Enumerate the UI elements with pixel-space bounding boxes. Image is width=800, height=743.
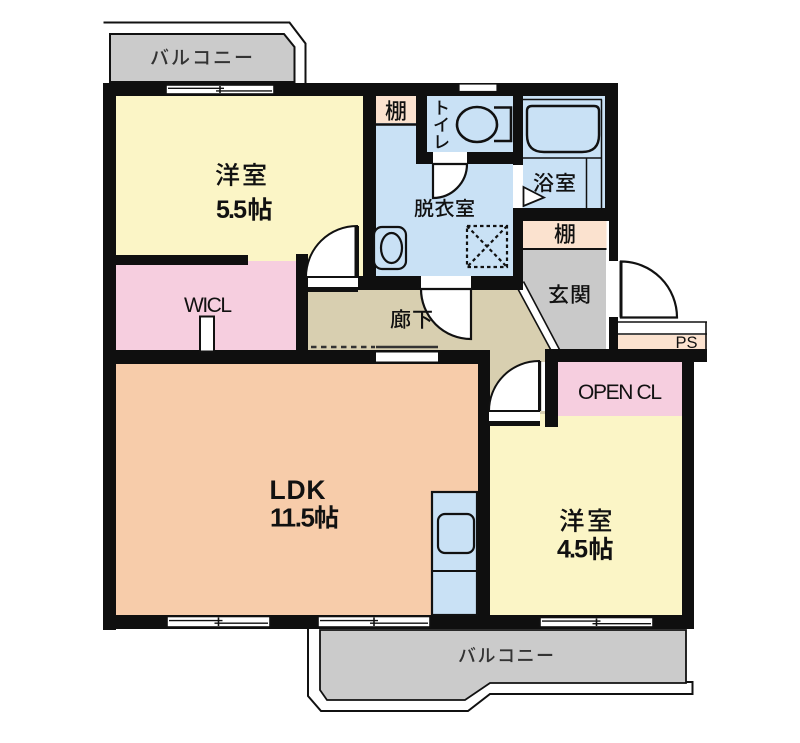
svg-text:OPEN CL: OPEN CL	[578, 381, 662, 404]
svg-text:WICL: WICL	[184, 294, 232, 317]
svg-text:PS: PS	[675, 334, 697, 352]
svg-text:5.5: 5.5	[216, 196, 247, 224]
svg-text:LDK: LDK	[270, 475, 326, 505]
svg-text:4.5: 4.5	[557, 536, 588, 564]
svg-text:11.5: 11.5	[270, 503, 315, 533]
